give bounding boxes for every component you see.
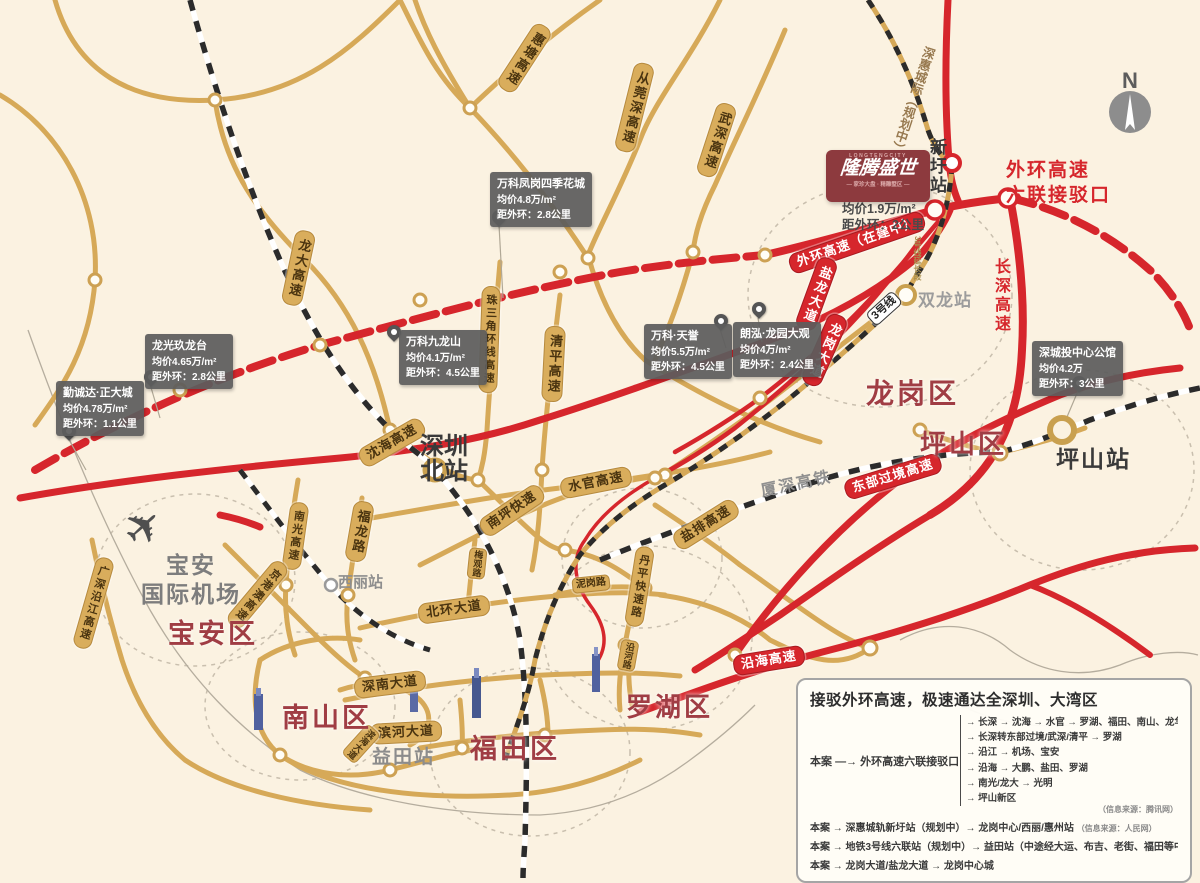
panel-branch: → 南光/龙大 → 光明: [966, 776, 1178, 791]
panel-hub-row: 本案 —→ 外环高速六联接驳口 → 长深 → 沈海 → 水官 → 罗湖、福田、南…: [810, 715, 1178, 806]
callout-distance: 距外环：2.8公里: [497, 208, 585, 223]
callout-price: 均价4.8万/m²: [497, 193, 585, 208]
callout-vanke-sijihuacheng: 万科凤岗四季花城 均价4.8万/m² 距外环：2.8公里: [490, 172, 592, 227]
station-ring-xili: [325, 579, 337, 591]
district-label-baoan: 宝安区: [168, 612, 258, 651]
interchange-label-line2: 六联接驳口: [1006, 180, 1111, 207]
compass-north-label: N: [1122, 68, 1138, 94]
callout-longguang: 龙光玖龙台 均价4.65万/m² 距外环：2.8公里: [145, 334, 233, 389]
road-label-meiguan: 梅观路: [466, 547, 487, 580]
callout-price: 均价4万/m²: [740, 343, 814, 358]
promo-map-page: { "colors":{"gold":"#d9ad5c","red":"#d62…: [0, 0, 1200, 878]
station-label-shenzhen-north-line1: 深圳: [420, 434, 468, 459]
panel-title: 接驳外环高速，极速通达全深圳、大湾区: [810, 688, 1178, 710]
panel-branches: → 长深 → 沈海 → 水官 → 罗湖、福田、南山、龙华 → 长深转东部过境/武…: [960, 715, 1178, 806]
callout-name: 万科九龙山: [406, 334, 480, 351]
callout-vanke-tianyu: 万科·天誉 均价5.5万/m² 距外环：4.5公里: [644, 324, 732, 379]
station-label-pingshan: 坪山站: [1056, 440, 1131, 474]
callout-shenchengtou: 深城投中心公馆 均价4.2万 距外环：3公里: [1032, 341, 1123, 396]
district-label-futian: 福田区: [470, 727, 560, 766]
panel-hub-label: 外环高速六联接驳口: [860, 756, 959, 768]
district-label-luohu: 罗湖区: [626, 687, 713, 724]
project-logo: LONGTENGCITY 隆腾盛世 — 家珍大盘 · 精雕墅区 —: [826, 150, 930, 202]
district-label-nanshan: 南山区: [282, 696, 372, 735]
callout-distance: 距外环：3公里: [1039, 377, 1116, 392]
airport-label: 宝安 国际机场: [126, 551, 256, 609]
callout-name: 深城投中心公馆: [1039, 345, 1116, 362]
callout-langhong: 朗泓·龙园大观 均价4万/m² 距外环：2.4公里: [733, 322, 821, 377]
callout-distance: 距外环：2.8公里: [152, 370, 226, 385]
station-label-shenzhen-north-line2: 北站: [420, 459, 468, 484]
station-ring-pingshan: [1050, 418, 1074, 442]
panel-route-row: 本案 → 龙岗大道/盐龙大道 → 龙岗中心城: [810, 857, 1178, 872]
panel-route-source: （信息来源：人民网）: [1077, 824, 1157, 833]
panel-branch: → 沿海 → 大鹏、盐田、罗湖: [966, 761, 1178, 776]
callout-name: 勤诚达·正大城: [63, 385, 137, 402]
callout-name: 万科凤岗四季花城: [497, 176, 585, 193]
interchange-label-line1: 外环高速: [1006, 155, 1090, 182]
airport-label-line2: 国际机场: [126, 580, 256, 609]
callout-name: 龙光玖龙台: [152, 338, 226, 355]
panel-branch: → 长深 → 沈海 → 水官 → 罗湖、福田、南山、龙华: [966, 715, 1178, 730]
panel-route-text: 本案 → 地铁3号线六联站（规划中）→ 益田站（中途经大运、布吉、老街、福田等中…: [810, 842, 1178, 853]
project-logo-name: 隆腾盛世: [829, 159, 927, 180]
road-label-changshen: 长深高速: [988, 258, 1012, 334]
callout-vanke-jiulongshan: 万科九龙山 均价4.1万/m² 距外环：4.5公里: [399, 330, 487, 385]
metro-label-line3-extension: 3号线延长段: [912, 236, 923, 280]
callout-price: 均价4.65万/m²: [152, 355, 226, 370]
district-label-pingshan: 坪山区: [920, 424, 1007, 461]
panel-route-row: 本案 → 地铁3号线六联站（规划中）→ 益田站（中途经大运、布吉、老街、福田等中…: [810, 838, 1178, 853]
callout-qinchengda: 勤诚达·正大城 均价4.78万/m² 距外环：1.1公里: [56, 381, 144, 436]
callout-price: 均价4.78万/m²: [63, 402, 137, 417]
callout-price: 均价4.2万: [1039, 362, 1116, 377]
route-info-panel: 接驳外环高速，极速通达全深圳、大湾区 本案 —→ 外环高速六联接驳口 → 长深 …: [796, 678, 1192, 883]
road-label-qingping: 清平高速: [541, 326, 566, 403]
project-logo-slogan: — 家珍大盘 · 精雕墅区 —: [830, 180, 926, 188]
panel-hub-arrow: —→: [835, 756, 857, 768]
callout-price: 均价4.1万/m²: [406, 351, 480, 366]
panel-route-text: 本案 → 深惠城轨新圩站（规划中）→ 龙岗中心/西丽/惠州站: [810, 823, 1074, 834]
callout-name: 万科·天誉: [651, 328, 725, 345]
panel-branch: → 长深转东部过境/武深/清平 → 罗湖: [966, 730, 1178, 745]
callout-distance: 距外环：2.4公里: [740, 358, 814, 373]
station-label-shuanglong: 双龙站: [918, 286, 972, 311]
panel-route-text: 本案 → 龙岗大道/盐龙大道 → 龙岗中心城: [810, 861, 994, 872]
callout-distance: 距外环：4.5公里: [651, 360, 725, 375]
station-label-yitian: 益田站: [372, 742, 435, 769]
panel-branch: → 沿江 → 机场、宝安: [966, 745, 1178, 760]
callout-price: 均价5.5万/m²: [651, 345, 725, 360]
station-label-shenzhen-north: 深圳 北站: [420, 434, 468, 484]
station-label-xili: 西丽站: [338, 571, 383, 592]
callout-distance: 距外环：4.5公里: [406, 366, 480, 381]
compass-icon: [1109, 91, 1151, 133]
airport-label-line1: 宝安: [126, 551, 256, 580]
project-distance: 距外环：2公里: [842, 214, 924, 233]
callout-name: 朗泓·龙园大观: [740, 326, 814, 343]
district-label-longgang: 龙岗区: [866, 372, 959, 412]
panel-route-row: 本案 → 深惠城轨新圩站（规划中）→ 龙岗中心/西丽/惠州站 （信息来源：人民网…: [810, 819, 1178, 834]
panel-hub-case: 本案: [810, 756, 832, 768]
panel-hub: 本案 —→ 外环高速六联接驳口: [810, 753, 960, 769]
callout-distance: 距外环：1.1公里: [63, 417, 137, 432]
